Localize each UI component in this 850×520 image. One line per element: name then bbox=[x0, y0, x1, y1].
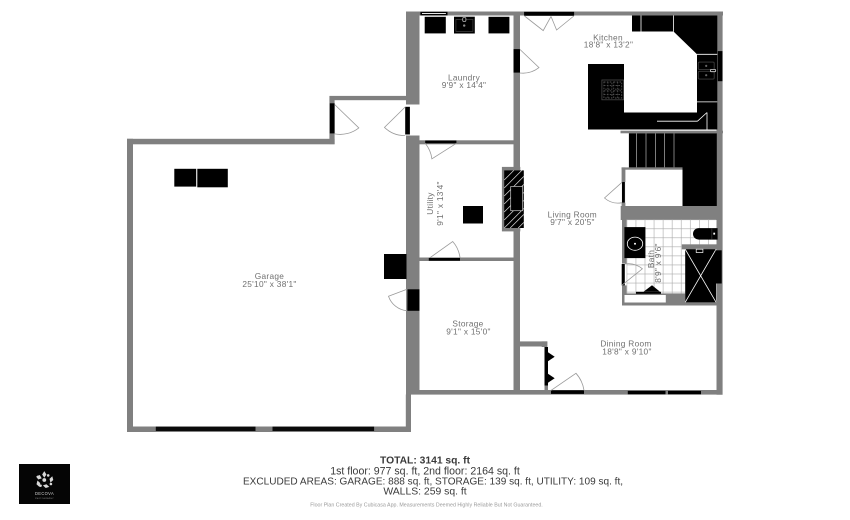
svg-text:DECOVA: DECOVA bbox=[35, 491, 54, 496]
svg-text:9'1" x 15'0": 9'1" x 15'0" bbox=[446, 327, 491, 337]
svg-text:8'9" x 9'6": 8'9" x 9'6" bbox=[653, 243, 663, 283]
svg-text:9'1" x 13'4": 9'1" x 13'4" bbox=[435, 181, 445, 226]
svg-text:Utility: Utility bbox=[425, 192, 435, 215]
svg-text:9'9" x 14'4": 9'9" x 14'4" bbox=[442, 80, 487, 90]
svg-text:18'8" x 13'2": 18'8" x 13'2" bbox=[584, 40, 633, 50]
svg-text:PHOTOGRAPHY: PHOTOGRAPHY bbox=[35, 497, 54, 500]
svg-text:18'8" x 9'10": 18'8" x 9'10" bbox=[602, 347, 651, 357]
svg-text:Floor Plan Created By Cubicasa: Floor Plan Created By Cubicasa App. Meas… bbox=[310, 502, 543, 508]
svg-text:WALLS: 259 sq. ft: WALLS: 259 sq. ft bbox=[383, 486, 466, 497]
svg-text:9'7" x 20'5": 9'7" x 20'5" bbox=[550, 217, 595, 227]
svg-text:25'10" x 38'1": 25'10" x 38'1" bbox=[242, 279, 296, 289]
